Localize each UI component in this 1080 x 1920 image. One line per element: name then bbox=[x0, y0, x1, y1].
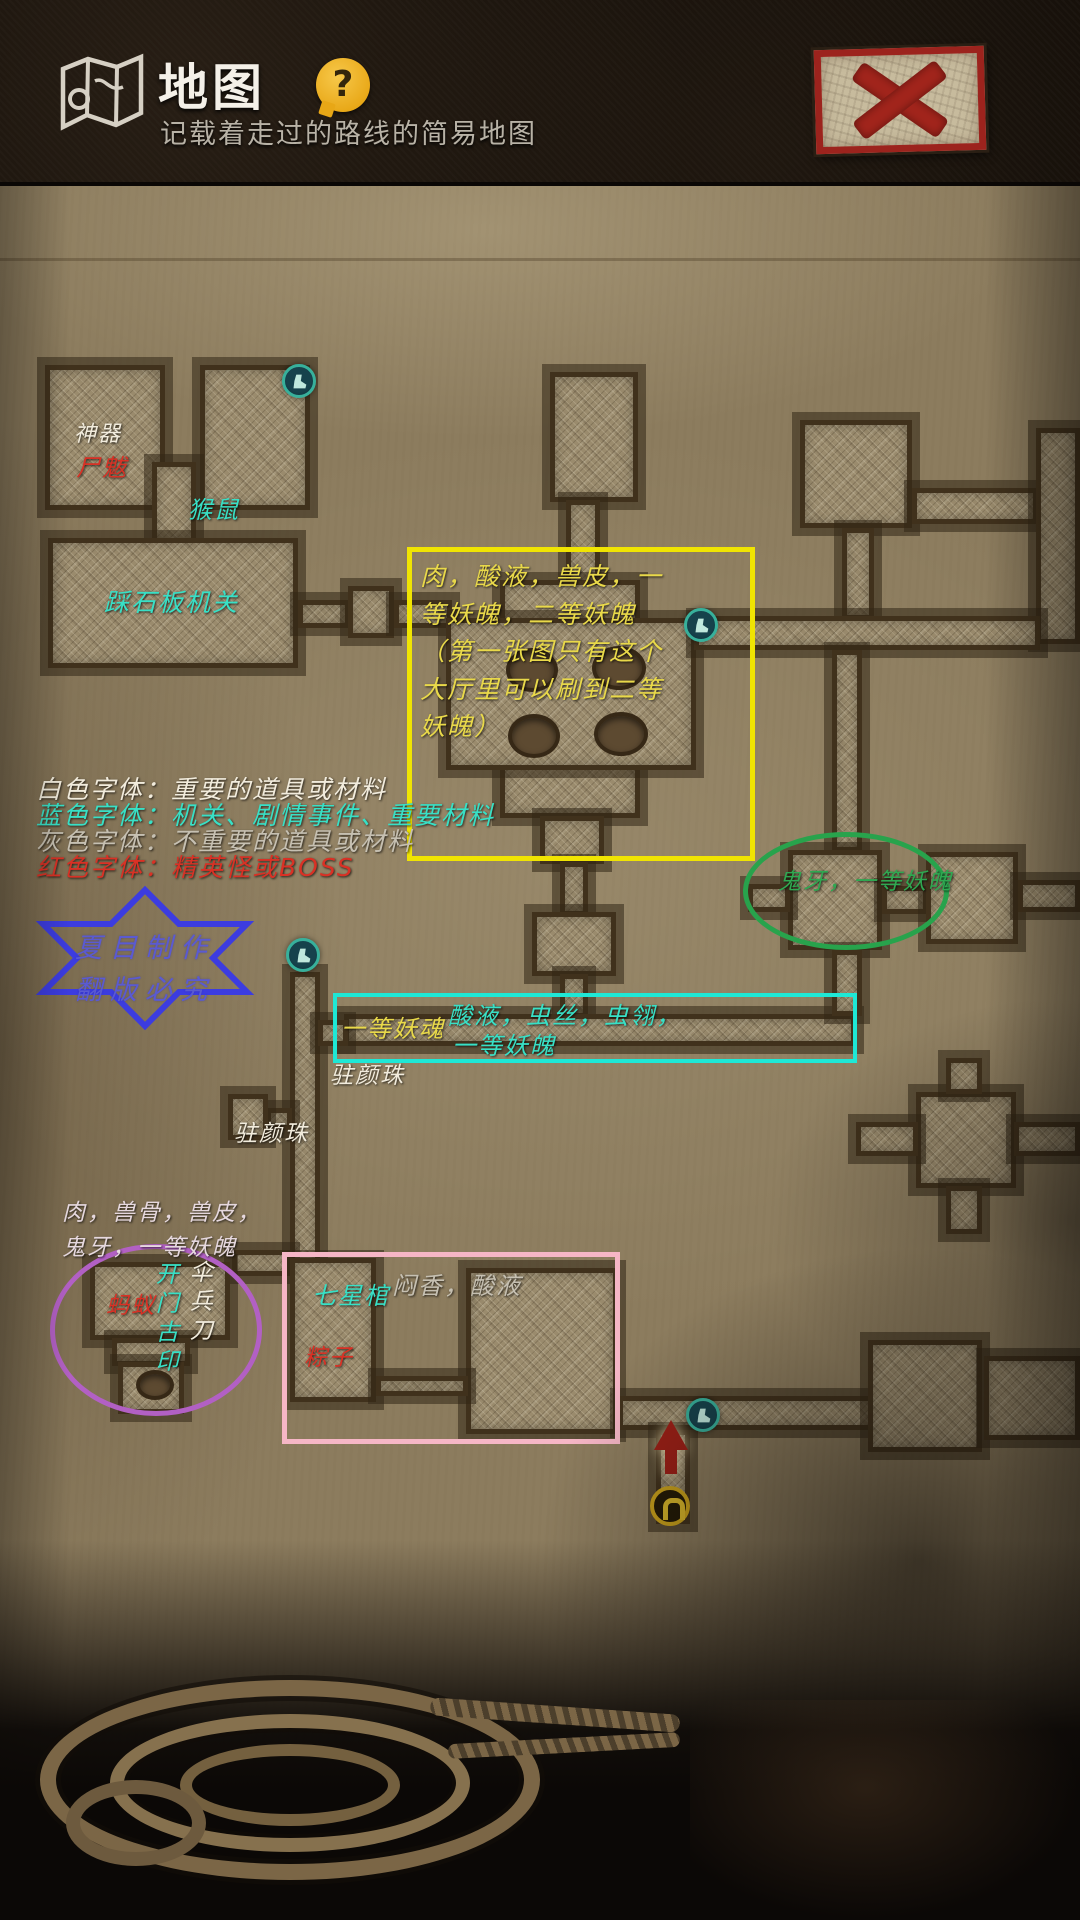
label-corridor-drops-1: 酸液，虫丝，虫翎， bbox=[448, 1000, 682, 1034]
watermark-star: 夏目制作 翻版必究 bbox=[20, 878, 270, 1038]
arrow-head bbox=[654, 1420, 688, 1450]
label-coffin-room-drops: 闷香，酸液 bbox=[392, 1270, 522, 1304]
boot-glyph bbox=[696, 619, 709, 633]
label-corridor-left-drop: 一等妖魂 bbox=[341, 1013, 445, 1047]
exit-icon bbox=[684, 608, 718, 642]
label-boss-top-left: 尸魃 bbox=[76, 452, 128, 486]
arch-glyph bbox=[663, 1498, 685, 1520]
label-beauty-pearl-2: 驻颜珠 bbox=[234, 1118, 309, 1150]
map-room bbox=[550, 372, 638, 502]
arrow-stem bbox=[665, 1450, 677, 1474]
parchment-fold bbox=[0, 258, 1080, 261]
label-monkey-rat: 猴鼠 bbox=[188, 494, 240, 528]
rope-knot bbox=[66, 1780, 206, 1866]
exit-icon bbox=[686, 1398, 720, 1432]
map-corridor bbox=[1014, 1122, 1080, 1156]
rope-photo bbox=[0, 1640, 1080, 1920]
page-title: 地图 bbox=[158, 48, 266, 120]
boot-glyph bbox=[698, 1409, 711, 1423]
entrance-icon bbox=[650, 1486, 690, 1526]
boot-glyph bbox=[298, 949, 311, 963]
map-corridor bbox=[856, 1122, 918, 1156]
exit-icon bbox=[282, 364, 316, 398]
legend-red: 红色字体：精英怪或BOSS bbox=[36, 850, 355, 885]
entrance-arrow-icon bbox=[654, 1420, 688, 1474]
boot-glyph bbox=[294, 375, 307, 389]
map-room bbox=[800, 420, 912, 528]
map-corridor bbox=[560, 862, 588, 916]
watermark-line2: 翻版必究 bbox=[20, 968, 270, 1007]
watermark-line1: 夏目制作 bbox=[20, 926, 270, 965]
label-corridor-drops-2: 一等妖魄 bbox=[452, 1030, 556, 1064]
label-artifact: 神器 bbox=[74, 420, 122, 451]
map-icon bbox=[55, 48, 149, 140]
map-room bbox=[916, 1092, 1016, 1188]
map-room bbox=[348, 586, 394, 638]
map-screen: 夏目制作 翻版必究 白色字体：重要的道具或材料 蓝色字体：机关、剧情事件、重要材… bbox=[0, 0, 1080, 1920]
map-room bbox=[984, 1356, 1080, 1440]
map-corridor bbox=[298, 600, 350, 628]
map-room bbox=[532, 912, 616, 976]
map-room bbox=[868, 1340, 982, 1452]
map-room bbox=[1036, 428, 1080, 644]
label-umbrella-knife: 伞兵刀 bbox=[182, 1260, 214, 1355]
map-corridor bbox=[842, 528, 874, 620]
label-ghost-tooth-room: 鬼牙，一等妖魄 bbox=[778, 866, 953, 898]
label-boss-coffin: 粽子 bbox=[304, 1342, 354, 1374]
help-icon[interactable]: ? bbox=[316, 58, 370, 112]
label-door-seal: 开门古印 bbox=[148, 1262, 180, 1382]
rope-coil bbox=[180, 1744, 400, 1826]
map-corridor bbox=[832, 650, 862, 852]
label-hall-drops: 肉，酸液，兽皮，一等妖魄，二等妖魄（第一张图只有这个大厅里可以刷到二等妖魄） bbox=[420, 558, 665, 746]
map-corridor bbox=[1018, 880, 1080, 912]
map-corridor bbox=[912, 488, 1038, 524]
close-button[interactable] bbox=[814, 46, 987, 154]
floor-shadow bbox=[690, 1700, 1080, 1920]
map-corridor bbox=[946, 1058, 982, 1094]
label-beauty-pearl-1: 驻颜珠 bbox=[330, 1060, 405, 1092]
exit-icon bbox=[286, 938, 320, 972]
label-stone-plate-trap: 踩石板机关 bbox=[104, 585, 239, 620]
map-corridor bbox=[946, 1186, 982, 1234]
label-seven-star-coffin: 七星棺 bbox=[312, 1280, 390, 1314]
label-west-room-drops: 肉，兽骨，兽皮，鬼牙，一等妖魄 bbox=[62, 1196, 267, 1265]
page-subtitle: 记载着走过的路线的简易地图 bbox=[160, 112, 537, 151]
help-question-mark: ? bbox=[333, 64, 354, 105]
